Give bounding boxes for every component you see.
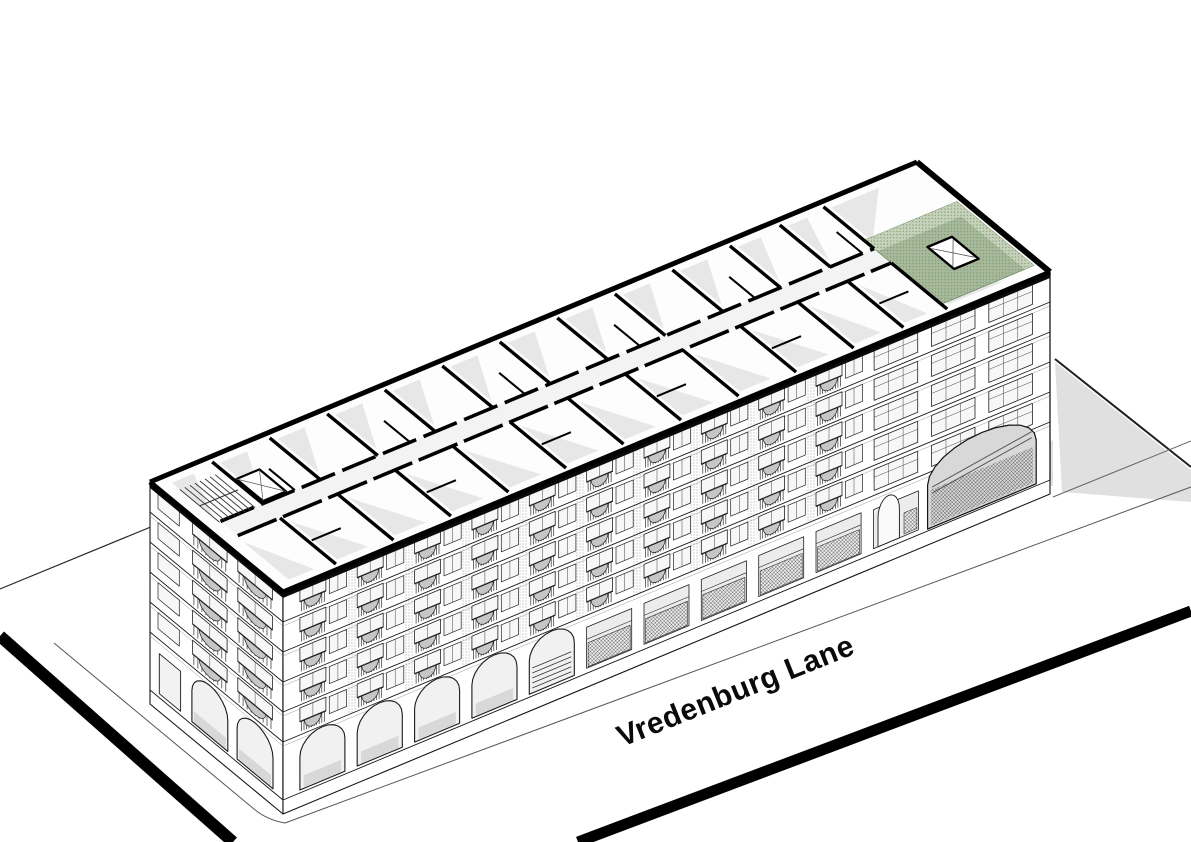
- brick-pier: [461, 520, 470, 668]
- brick-pier: [633, 448, 642, 596]
- brick-pier: [691, 424, 700, 572]
- axonometric-drawing-stage: Vredenburg Lane: [0, 0, 1191, 842]
- brick-pier: [404, 544, 413, 692]
- brick-pier: [748, 400, 757, 548]
- ground-shadow: [1055, 362, 1191, 502]
- brick-pier: [805, 376, 814, 524]
- brick-pier: [347, 568, 356, 716]
- building-axonometric-scene: Vredenburg Lane: [0, 0, 1191, 842]
- brick-pier: [519, 496, 528, 644]
- brick-pier: [576, 472, 585, 620]
